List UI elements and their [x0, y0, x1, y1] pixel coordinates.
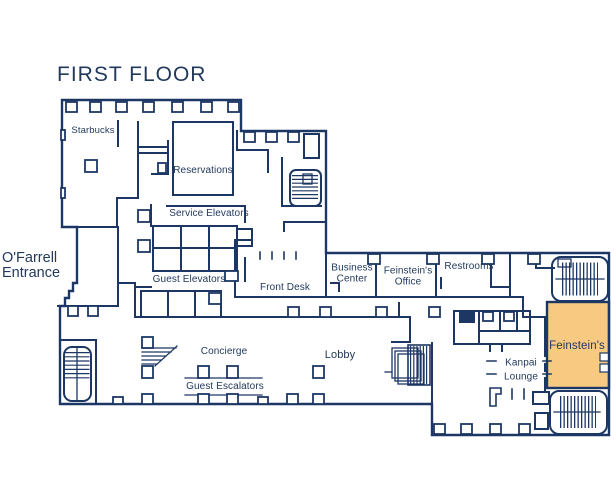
kanpai-service-cluster: [454, 311, 530, 351]
room-label-restrooms: Restrooms: [444, 262, 493, 273]
room-label-feinsteins: Feinstein's: [549, 340, 605, 352]
room-label-lobby: Lobby: [325, 350, 355, 362]
stairwell-lower-left: [64, 347, 91, 401]
room-label-service-elevators: Service Elevators: [169, 209, 249, 220]
room-label-kanpai-lounge: Kanpai Lounge: [504, 357, 538, 384]
room-label-front-desk: Front Desk: [260, 283, 310, 294]
room-label-starbucks: Starbucks: [71, 126, 114, 136]
lobby-grand-stair: [385, 345, 430, 385]
stairwell-upper-right: [552, 257, 608, 301]
room-label-reservations: Reservations: [173, 166, 233, 177]
floorplan-page: FIRST FLOOR O'Farrell Entrance Starbucks…: [0, 0, 616, 502]
stairwell-lower-right: [533, 391, 607, 434]
front-desk-ticks: [260, 252, 296, 259]
room-label-feinsteins-office: Feinstein's Office: [384, 267, 433, 288]
page-title: FIRST FLOOR: [57, 63, 206, 87]
guest-elevator-core: [141, 291, 221, 317]
escalator-symbol: [142, 346, 177, 366]
room-label-guest-elevators: Guest Elevators: [153, 275, 226, 286]
ofarrell-entrance-label: O'Farrell Entrance: [2, 251, 60, 281]
room-label-business-center: Business Center: [331, 264, 372, 285]
service-stair-shaft: [290, 134, 321, 206]
room-label-guest-escalators: Guest Escalators: [186, 382, 264, 393]
room-label-concierge: Concierge: [201, 347, 247, 358]
